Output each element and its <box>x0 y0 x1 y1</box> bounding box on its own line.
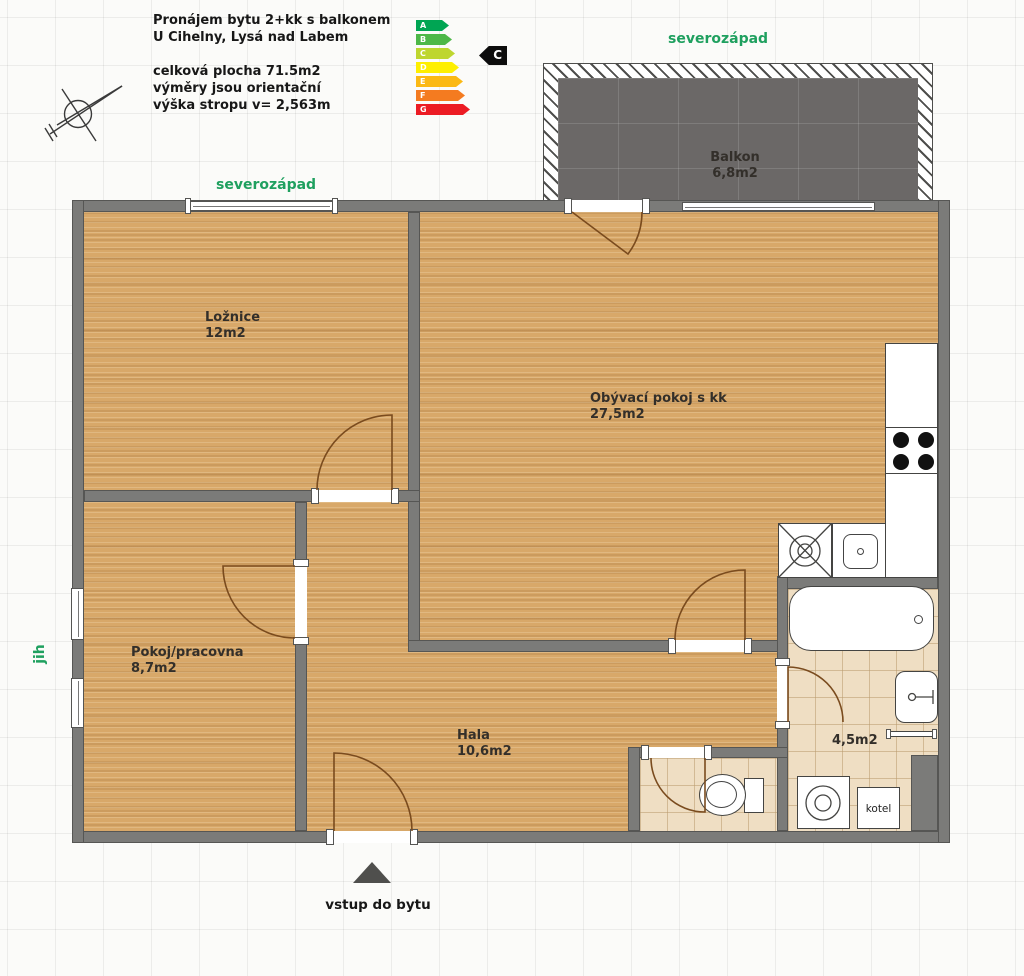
room-name: Balkon <box>690 150 780 166</box>
wc-door-opening <box>648 747 705 758</box>
door-post <box>775 721 790 729</box>
living-hall-door-opening <box>675 640 745 652</box>
orientation-label-plan-top: severozápad <box>216 177 316 193</box>
bathroom-sink <box>895 671 938 723</box>
bedroom-door-opening <box>318 490 393 502</box>
study-window-2 <box>71 678 84 728</box>
washing-machine <box>797 776 850 829</box>
bedroom-window <box>190 201 333 211</box>
energy-current-class-pointer: C <box>479 46 507 65</box>
energy-class-b: B <box>416 34 452 45</box>
study-door-opening <box>295 566 307 638</box>
listing-details: celková plocha 71.5m2 výměry jsou orient… <box>153 63 331 114</box>
energy-class-b-letter: B <box>420 35 426 44</box>
detail-line-2: výměry jsou orientační <box>153 80 331 97</box>
door-post <box>410 829 418 845</box>
bathtub-drain <box>914 615 923 624</box>
cooktop <box>885 427 938 474</box>
boiler-label: kotel <box>866 803 892 815</box>
room-name: Pokoj/pracovna <box>131 645 244 661</box>
room-area: 10,6m2 <box>457 744 512 760</box>
room-label-study: Pokoj/pracovna 8,7m2 <box>131 645 244 677</box>
room-label-hall: Hala 10,6m2 <box>457 728 512 760</box>
entrance-arrow-icon <box>353 862 391 883</box>
door-post <box>293 637 309 645</box>
floor-plan: Pronájem bytu 2+kk s balkonem U Cihelny,… <box>0 0 1024 976</box>
burner-icon <box>918 454 934 470</box>
energy-label: A B C D E F G <box>416 20 470 118</box>
door-post <box>641 745 649 760</box>
door-post <box>642 198 650 214</box>
listing-title: Pronájem bytu 2+kk s balkonem U Cihelny,… <box>153 12 390 46</box>
energy-class-d: D <box>416 62 459 73</box>
balcony-door-opening <box>572 200 642 212</box>
room-area: 4,5m2 <box>832 733 878 749</box>
outer-wall-bottom <box>72 831 950 843</box>
energy-class-a: A <box>416 20 449 31</box>
energy-class-a-letter: A <box>420 21 426 30</box>
room-label-balcony: Balkon 6,8m2 <box>690 150 780 182</box>
utility-shaft <box>911 755 938 831</box>
entrance-door-opening <box>332 831 412 843</box>
detail-line-1: celková plocha 71.5m2 <box>153 63 331 80</box>
wall-study-hall <box>295 502 307 831</box>
living-balcony-window <box>682 202 875 211</box>
room-area: 27,5m2 <box>590 407 727 423</box>
energy-class-g-letter: G <box>420 105 427 114</box>
burner-icon <box>893 454 909 470</box>
door-post <box>668 638 676 654</box>
kitchen-cabinet <box>885 343 938 428</box>
towel-rail-end <box>932 729 937 739</box>
toilet-bowl <box>699 774 746 816</box>
bathroom-door-opening <box>777 665 788 722</box>
balcony-floor <box>558 78 918 212</box>
outer-wall-right <box>938 200 950 843</box>
room-area: 8,7m2 <box>131 661 244 677</box>
title-line-1: Pronájem bytu 2+kk s balkonem <box>153 12 390 29</box>
kitchen-sink <box>832 523 886 578</box>
wall-bedroom-living <box>408 212 420 652</box>
energy-class-e-letter: E <box>420 77 425 86</box>
energy-class-g: G <box>416 104 470 115</box>
room-label-living: Obývací pokoj s kk 27,5m2 <box>590 391 727 423</box>
energy-class-d-letter: D <box>420 63 427 72</box>
room-name: Hala <box>457 728 512 744</box>
energy-class-f: F <box>416 90 465 101</box>
compass-icon <box>45 86 122 141</box>
energy-class-c-letter: C <box>420 49 426 58</box>
detail-line-3: výška stropu v= 2,563m <box>153 97 331 114</box>
orientation-label-top: severozápad <box>668 31 768 47</box>
door-post <box>293 559 309 567</box>
door-post <box>564 198 572 214</box>
toilet-tank <box>744 778 764 813</box>
kitchen-counter <box>885 473 938 578</box>
room-area: 6,8m2 <box>690 166 780 182</box>
room-area: 12m2 <box>205 326 260 342</box>
orientation-label-left: jih <box>32 634 48 674</box>
room-name: Ložnice <box>205 310 260 326</box>
towel-rail <box>889 731 934 737</box>
wall-wc-left <box>628 747 640 831</box>
towel-rail-end <box>886 729 891 739</box>
window-post <box>332 198 338 214</box>
room-label-bedroom: Ložnice 12m2 <box>205 310 260 342</box>
room-name: Obývací pokoj s kk <box>590 391 727 407</box>
door-post <box>311 488 319 504</box>
window-post <box>185 198 191 214</box>
door-post <box>704 745 712 760</box>
burner-icon <box>893 432 909 448</box>
entrance-label: vstup do bytu <box>318 897 438 913</box>
energy-class-f-letter: F <box>420 91 425 100</box>
burner-icon <box>918 432 934 448</box>
dishwasher <box>778 523 832 578</box>
bathtub <box>789 586 934 651</box>
energy-class-c: C <box>416 48 455 59</box>
door-post <box>744 638 752 654</box>
boiler: kotel <box>857 787 900 829</box>
study-window-1 <box>71 588 84 640</box>
energy-class-e: E <box>416 76 463 87</box>
room-label-bathroom: 4,5m2 <box>832 733 878 749</box>
outer-wall-left <box>72 200 84 843</box>
door-post <box>775 658 790 666</box>
door-post <box>391 488 399 504</box>
title-line-2: U Cihelny, Lysá nad Labem <box>153 29 390 46</box>
door-post <box>326 829 334 845</box>
